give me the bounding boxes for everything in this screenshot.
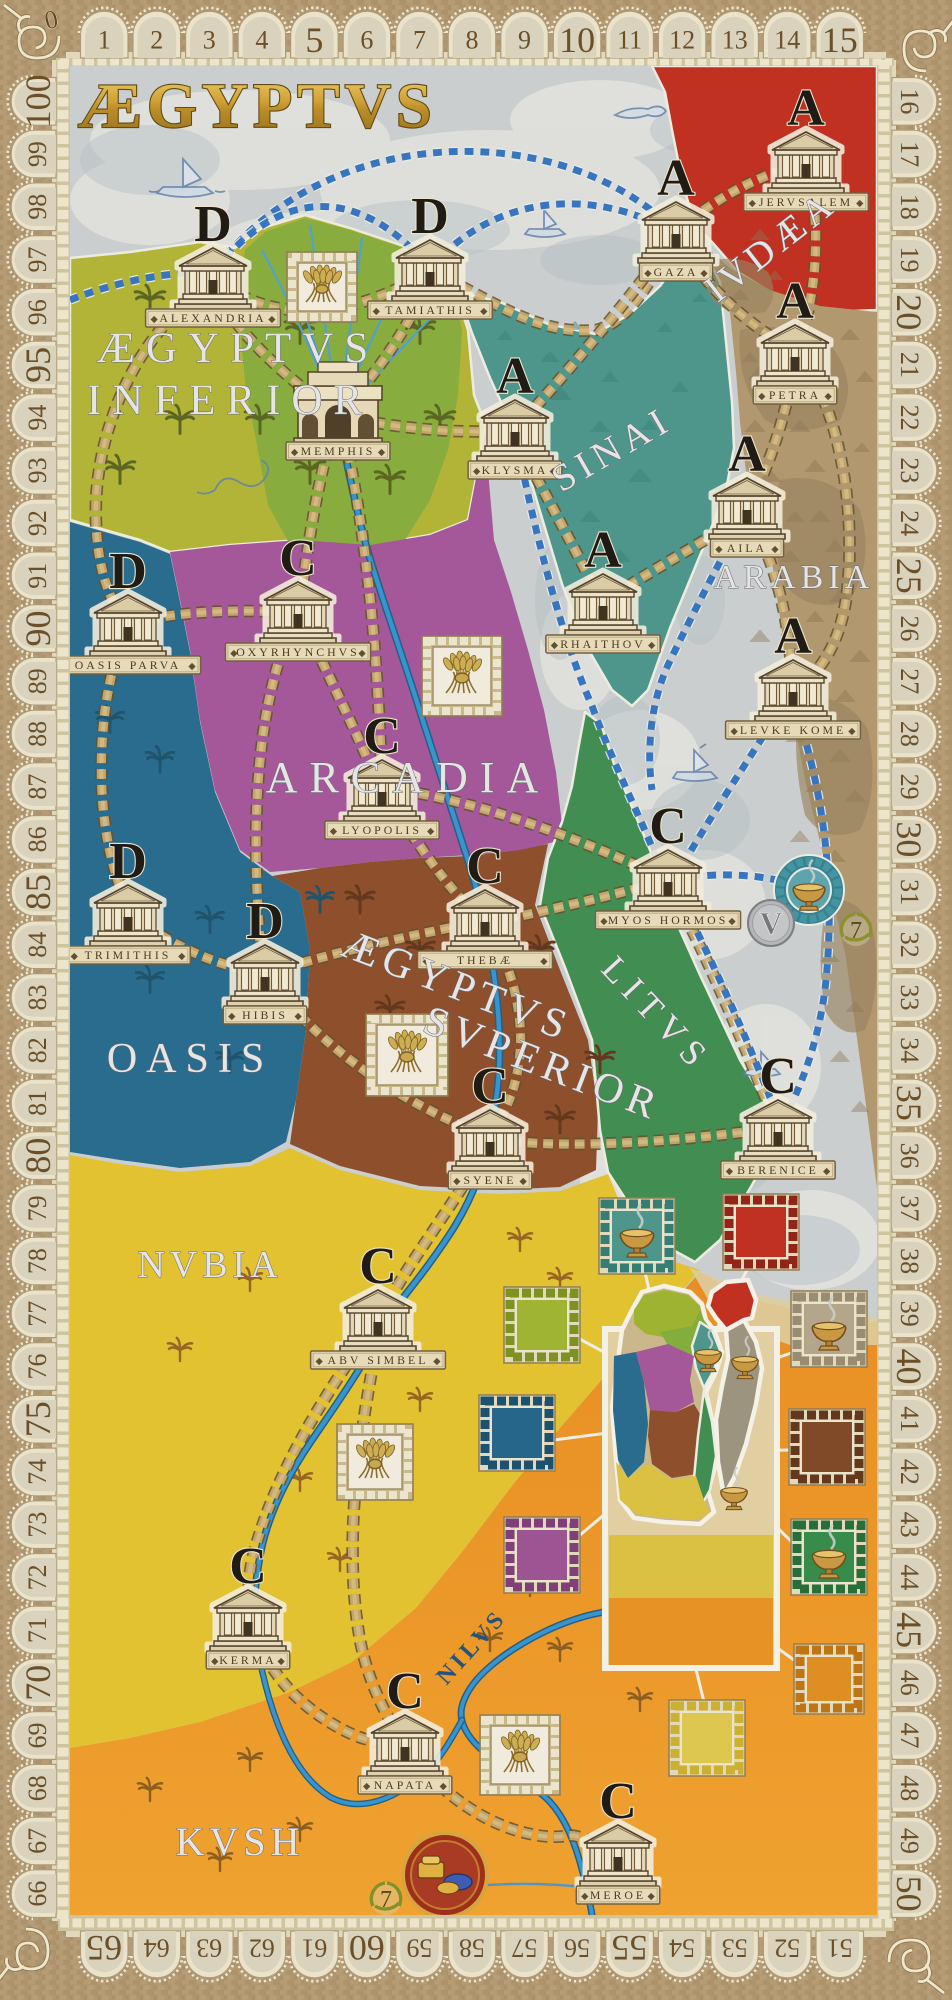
svg-text:5: 5: [305, 20, 323, 60]
svg-text:4: 4: [255, 25, 268, 54]
svg-text:72: 72: [23, 1564, 52, 1590]
svg-text:11: 11: [617, 25, 642, 54]
svg-text:90: 90: [18, 611, 58, 647]
svg-text:7: 7: [413, 25, 426, 54]
svg-text:57: 57: [512, 1934, 538, 1963]
svg-text:48: 48: [895, 1775, 924, 1801]
svg-text:62: 62: [249, 1934, 275, 1963]
svg-text:79: 79: [23, 1195, 52, 1221]
svg-text:88: 88: [23, 721, 52, 747]
svg-text:1: 1: [98, 25, 111, 54]
svg-text:83: 83: [23, 985, 52, 1011]
svg-text:77: 77: [23, 1301, 52, 1327]
svg-text:40: 40: [889, 1349, 929, 1385]
svg-text:67: 67: [23, 1828, 52, 1854]
svg-text:75: 75: [18, 1401, 58, 1437]
svg-text:29: 29: [895, 774, 924, 800]
svg-text:85: 85: [18, 874, 58, 910]
svg-text:46: 46: [895, 1670, 924, 1696]
svg-text:28: 28: [895, 721, 924, 747]
svg-text:31: 31: [895, 879, 924, 905]
svg-text:99: 99: [23, 141, 52, 167]
svg-text:74: 74: [23, 1459, 52, 1485]
svg-text:25: 25: [889, 558, 929, 594]
svg-text:100: 100: [18, 74, 58, 128]
svg-text:54: 54: [669, 1934, 695, 1963]
svg-text:53: 53: [722, 1934, 748, 1963]
svg-text:81: 81: [23, 1090, 52, 1116]
svg-text:92: 92: [23, 510, 52, 536]
svg-text:56: 56: [564, 1934, 590, 1963]
svg-text:44: 44: [895, 1564, 924, 1590]
svg-text:76: 76: [23, 1354, 52, 1380]
svg-text:32: 32: [895, 932, 924, 958]
svg-text:12: 12: [669, 25, 695, 54]
svg-text:13: 13: [722, 25, 748, 54]
svg-text:17: 17: [895, 141, 924, 167]
svg-text:6: 6: [360, 25, 373, 54]
svg-text:27: 27: [895, 668, 924, 694]
svg-text:51: 51: [827, 1934, 853, 1963]
svg-text:2: 2: [150, 25, 163, 54]
svg-text:50: 50: [889, 1876, 929, 1912]
svg-text:10: 10: [559, 20, 595, 60]
svg-text:34: 34: [895, 1037, 924, 1063]
svg-text:3: 3: [203, 25, 216, 54]
svg-text:65: 65: [86, 1928, 122, 1968]
svg-text:38: 38: [895, 1248, 924, 1274]
svg-text:95: 95: [18, 347, 58, 383]
svg-text:26: 26: [895, 616, 924, 642]
svg-text:71: 71: [23, 1617, 52, 1643]
svg-text:35: 35: [889, 1085, 929, 1121]
svg-text:20: 20: [889, 294, 929, 330]
svg-text:18: 18: [895, 194, 924, 220]
svg-text:80: 80: [18, 1138, 58, 1174]
svg-text:16: 16: [895, 88, 924, 114]
svg-text:60: 60: [349, 1928, 385, 1968]
svg-text:45: 45: [889, 1612, 929, 1648]
svg-text:15: 15: [822, 20, 858, 60]
svg-text:49: 49: [895, 1828, 924, 1854]
svg-text:97: 97: [23, 247, 52, 273]
svg-text:36: 36: [895, 1143, 924, 1169]
svg-text:78: 78: [23, 1248, 52, 1274]
svg-text:8: 8: [466, 25, 479, 54]
svg-text:43: 43: [895, 1512, 924, 1538]
svg-text:52: 52: [774, 1934, 800, 1963]
svg-text:37: 37: [895, 1195, 924, 1221]
svg-text:86: 86: [23, 826, 52, 852]
svg-text:47: 47: [895, 1723, 924, 1749]
svg-text:69: 69: [23, 1723, 52, 1749]
svg-text:73: 73: [23, 1512, 52, 1538]
svg-text:22: 22: [895, 405, 924, 431]
svg-text:23: 23: [895, 457, 924, 483]
svg-text:63: 63: [196, 1934, 222, 1963]
svg-text:9: 9: [518, 25, 531, 54]
svg-text:58: 58: [459, 1934, 485, 1963]
svg-text:94: 94: [23, 405, 52, 431]
svg-text:59: 59: [407, 1934, 433, 1963]
svg-text:68: 68: [23, 1775, 52, 1801]
svg-text:98: 98: [23, 194, 52, 220]
svg-text:70: 70: [18, 1665, 58, 1701]
svg-text:87: 87: [23, 774, 52, 800]
svg-text:61: 61: [301, 1934, 327, 1963]
svg-text:84: 84: [23, 932, 52, 958]
svg-text:91: 91: [23, 563, 52, 589]
svg-text:42: 42: [895, 1459, 924, 1485]
svg-text:21: 21: [895, 352, 924, 378]
svg-text:24: 24: [895, 510, 924, 536]
svg-text:55: 55: [612, 1928, 648, 1968]
svg-text:66: 66: [23, 1881, 52, 1907]
svg-text:89: 89: [23, 668, 52, 694]
svg-text:96: 96: [23, 299, 52, 325]
svg-text:93: 93: [23, 457, 52, 483]
svg-text:41: 41: [895, 1406, 924, 1432]
svg-text:64: 64: [144, 1934, 170, 1963]
svg-text:39: 39: [895, 1301, 924, 1327]
svg-text:82: 82: [23, 1037, 52, 1063]
svg-text:14: 14: [774, 25, 800, 54]
svg-text:19: 19: [895, 247, 924, 273]
svg-text:33: 33: [895, 985, 924, 1011]
svg-text:30: 30: [889, 821, 929, 857]
